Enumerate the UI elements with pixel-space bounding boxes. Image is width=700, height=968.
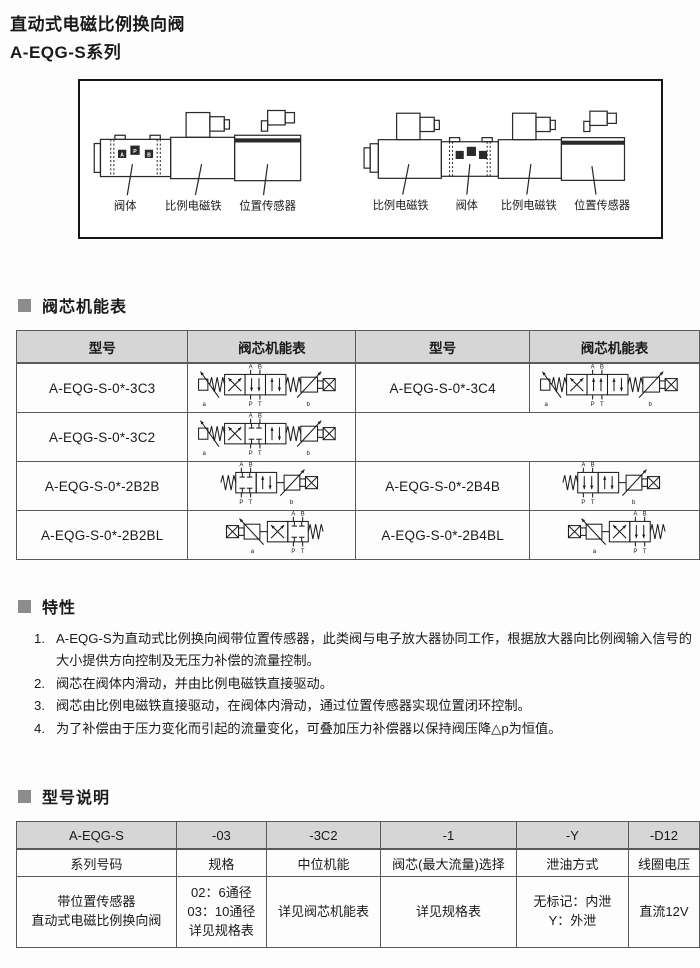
svg-text:P: P — [582, 500, 586, 506]
item-number: 3. — [34, 695, 56, 717]
svg-text:B: B — [258, 413, 262, 419]
hydraulic-symbol: ABPTa — [193, 511, 351, 556]
svg-text:a: a — [251, 549, 255, 555]
section-spool-function: 阀芯机能表 — [18, 293, 692, 317]
svg-text:b: b — [306, 402, 310, 408]
symbol-cell: ABPTab — [529, 363, 699, 413]
label-row: 系列号码 规格 中位机能 阀芯(最大流量)选择 泄油方式 线圈电压 — [17, 849, 700, 877]
svg-text:A: A — [582, 462, 587, 468]
svg-text:P: P — [291, 549, 295, 555]
svg-text:a: a — [202, 451, 206, 457]
col-header-model: 型号 — [17, 331, 188, 364]
item-number: 1. — [34, 628, 56, 673]
valve-drawing-double-solenoid: 比例电磁铁 阀体 比例电磁铁 位置传感器 — [360, 95, 655, 223]
label-cell: 系列号码 — [17, 849, 177, 877]
svg-text:A: A — [634, 511, 639, 517]
desc-cell: 直流12V — [628, 877, 699, 948]
desc-cell: 无标记：内泄 Y：外泄 — [516, 877, 628, 948]
svg-text:P: P — [591, 402, 595, 408]
hydraulic-symbol: ABPTab — [193, 413, 351, 458]
svg-text:P: P — [634, 549, 638, 555]
list-item: 2. 阀芯在阀体内滑动，并由比例电磁铁直接驱动。 — [34, 673, 694, 695]
label-valve-body: 阀体 — [456, 198, 478, 212]
hydraulic-symbol: ABPTa — [535, 511, 693, 556]
label-prop-solenoid: 比例电磁铁 — [165, 199, 222, 213]
label-prop-solenoid-left: 比例电磁铁 — [373, 198, 429, 212]
symbol-cell: ABPTab — [188, 363, 356, 413]
list-item: 4. 为了补偿由于压力变化而引起的流量变化，可叠加压力补偿器以保持阀压降△p为恒… — [34, 718, 694, 740]
table-row: A-EQG-S-0*-2B2B ABPTb A-EQG-S-0*-2B4B AB… — [17, 462, 700, 511]
hydraulic-symbol: ABPTab — [535, 364, 693, 409]
svg-text:B: B — [591, 462, 595, 468]
item-number: 2. — [34, 673, 56, 695]
model-cell: A-EQG-S-0*-3C3 — [17, 363, 188, 413]
code-cell: -Y — [516, 822, 628, 850]
model-code-table: A-EQG-S -03 -3C2 -1 -Y -D12 系列号码 规格 中位机能… — [16, 821, 700, 948]
symbol-cell: ABPTab — [188, 413, 356, 462]
svg-text:T: T — [591, 500, 595, 506]
hydraulic-symbol: ABPTb — [535, 462, 693, 507]
section-title: 阀芯机能表 — [42, 293, 127, 317]
svg-text:b: b — [290, 500, 294, 506]
svg-text:B: B — [258, 364, 262, 370]
label-prop-solenoid-right: 比例电磁铁 — [501, 198, 557, 212]
item-text: 阀芯在阀体内滑动，并由比例电磁铁直接驱动。 — [56, 673, 694, 695]
label-cell: 泄油方式 — [516, 849, 628, 877]
datasheet-page: 直动式电磁比例换向阀 A-EQG-S系列 A P B — [0, 0, 700, 968]
model-cell: A-EQG-S-0*-2B4B — [356, 462, 529, 511]
port-b-letter: B — [147, 152, 151, 158]
section-bullet-icon — [18, 600, 31, 613]
item-text: 为了补偿由于压力变化而引起的流量变化，可叠加压力补偿器以保持阀压降△p为恒值。 — [56, 718, 694, 740]
symbol-cell: ABPTb — [188, 462, 356, 511]
table-row: A-EQG-S-0*-3C3 ABPTab A-EQG-S-0*-3C4 ABP… — [17, 363, 700, 413]
svg-text:B: B — [301, 511, 305, 517]
svg-text:b: b — [306, 451, 310, 457]
col-header-symbol: 阀芯机能表 — [529, 331, 699, 364]
item-text: 阀芯由比例电磁铁直接驱动，在阀体内滑动，通过位置传感器实现位置闭环控制。 — [56, 695, 694, 717]
desc-cell: 带位置传感器 直动式电磁比例换向阀 — [17, 877, 177, 948]
label-position-sensor: 位置传感器 — [239, 199, 296, 213]
symbol-cell: ABPTa — [529, 511, 699, 560]
valve-drawing-single-solenoid: A P B 阀体 比例电磁铁 位置传感器 — [86, 95, 344, 223]
svg-text:B: B — [600, 364, 604, 370]
code-cell: -D12 — [628, 822, 699, 850]
list-item: 3. 阀芯由比例电磁铁直接驱动，在阀体内滑动，通过位置传感器实现位置闭环控制。 — [34, 695, 694, 717]
table-row: A-EQG-S-0*-2B2BL ABPTa A-EQG-S-0*-2B4BL … — [17, 511, 700, 560]
section-bullet-icon — [18, 299, 31, 312]
code-cell: -03 — [176, 822, 266, 850]
svg-text:T: T — [643, 549, 647, 555]
section-bullet-icon — [18, 790, 31, 803]
svg-text:A: A — [249, 364, 254, 370]
svg-text:P: P — [249, 402, 253, 408]
label-cell: 规格 — [176, 849, 266, 877]
svg-text:B: B — [643, 511, 647, 517]
label-cell: 中位机能 — [266, 849, 380, 877]
symbol-cell: ABPTb — [529, 462, 699, 511]
spool-function-table: 型号 阀芯机能表 型号 阀芯机能表 A-EQG-S-0*-3C3 ABPTab … — [16, 330, 700, 560]
code-row: A-EQG-S -03 -3C2 -1 -Y -D12 — [17, 822, 700, 850]
hydraulic-symbol: ABPTab — [193, 364, 351, 409]
table-header-row: 型号 阀芯机能表 型号 阀芯机能表 — [17, 331, 700, 364]
desc-cell: 详见规格表 — [381, 877, 517, 948]
port-a-letter: A — [120, 152, 124, 158]
section-title: 型号说明 — [42, 784, 110, 808]
code-cell: -1 — [381, 822, 517, 850]
section-title: 特性 — [42, 594, 76, 618]
series-title: A-EQG-S系列 — [10, 38, 692, 63]
svg-text:P: P — [239, 500, 243, 506]
model-cell: A-EQG-S-0*-3C2 — [17, 413, 188, 462]
model-cell: A-EQG-S-0*-2B4BL — [356, 511, 529, 560]
svg-text:T: T — [601, 402, 605, 408]
svg-text:P: P — [249, 451, 253, 457]
code-cell: -3C2 — [266, 822, 380, 850]
col-header-symbol: 阀芯机能表 — [188, 331, 356, 364]
empty-cell — [356, 413, 700, 462]
svg-text:B: B — [249, 462, 253, 468]
label-cell: 线圈电压 — [628, 849, 699, 877]
svg-text:a: a — [545, 402, 549, 408]
svg-text:b: b — [649, 402, 653, 408]
code-cell: A-EQG-S — [17, 822, 177, 850]
svg-text:A: A — [249, 413, 254, 419]
svg-text:A: A — [291, 511, 296, 517]
label-position-sensor: 位置传感器 — [574, 198, 630, 212]
label-cell: 阀芯(最大流量)选择 — [381, 849, 517, 877]
svg-text:A: A — [239, 462, 244, 468]
item-text: A-EQG-S为直动式比例换向阀带位置传感器，此类阀与电子放大器协同工作，根据放… — [56, 628, 694, 673]
svg-text:T: T — [258, 402, 262, 408]
section-features: 特性 — [18, 594, 692, 618]
svg-text:a: a — [593, 549, 597, 555]
svg-text:T: T — [249, 500, 253, 506]
col-header-model: 型号 — [356, 331, 529, 364]
desc-row: 带位置传感器 直动式电磁比例换向阀 02：6通径 03：10通径 详见规格表 详… — [17, 877, 700, 948]
item-number: 4. — [34, 718, 56, 740]
symbol-cell: ABPTa — [188, 511, 356, 560]
svg-text:b: b — [632, 500, 636, 506]
model-cell: A-EQG-S-0*-2B2BL — [17, 511, 188, 560]
hydraulic-symbol: ABPTb — [193, 462, 351, 507]
page-title: 直动式电磁比例换向阀 — [10, 10, 692, 35]
product-figure-box: A P B 阀体 比例电磁铁 位置传感器 — [78, 79, 663, 239]
features-list: 1. A-EQG-S为直动式比例换向阀带位置传感器，此类阀与电子放大器协同工作，… — [34, 628, 694, 740]
svg-text:T: T — [258, 451, 262, 457]
port-p-letter: P — [133, 149, 137, 155]
model-cell: A-EQG-S-0*-3C4 — [356, 363, 529, 413]
section-model-code: 型号说明 — [18, 784, 692, 808]
label-valve-body: 阀体 — [114, 199, 137, 213]
svg-text:a: a — [202, 402, 206, 408]
desc-cell: 详见阀芯机能表 — [266, 877, 380, 948]
svg-text:A: A — [591, 364, 596, 370]
table-row: A-EQG-S-0*-3C2 ABPTab — [17, 413, 700, 462]
model-cell: A-EQG-S-0*-2B2B — [17, 462, 188, 511]
list-item: 1. A-EQG-S为直动式比例换向阀带位置传感器，此类阀与电子放大器协同工作，… — [34, 628, 694, 673]
desc-cell: 02：6通径 03：10通径 详见规格表 — [176, 877, 266, 948]
svg-text:T: T — [301, 549, 305, 555]
